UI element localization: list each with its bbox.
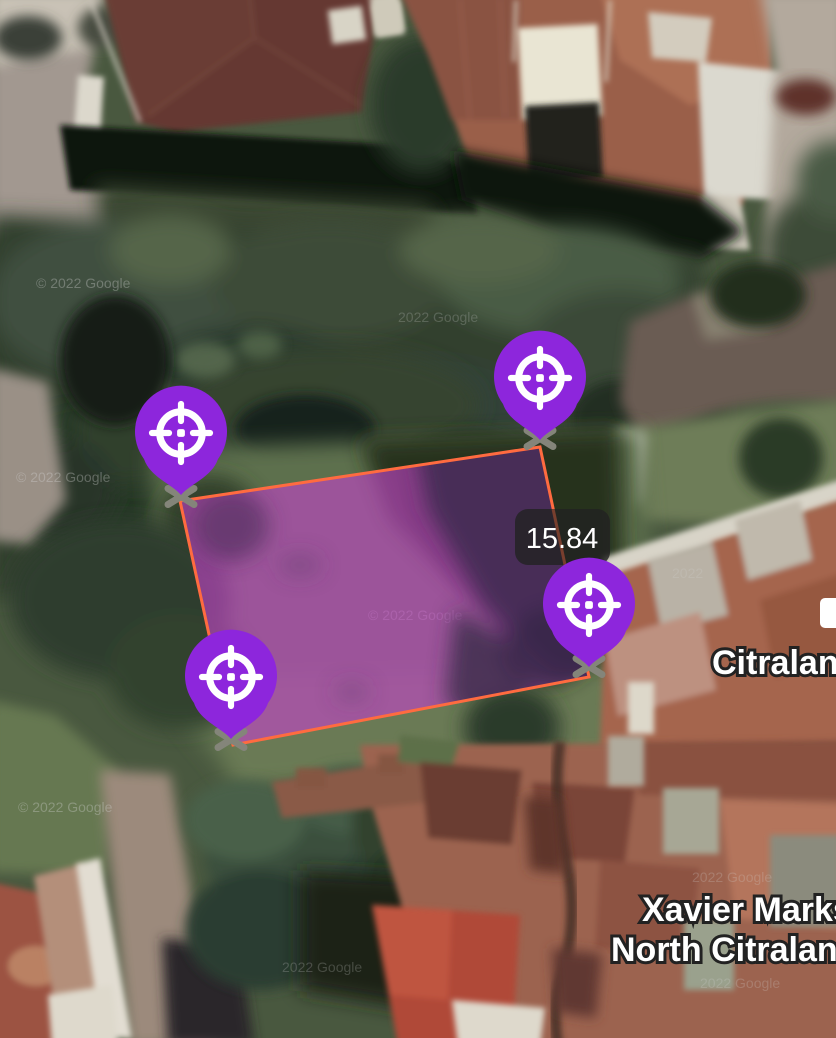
svg-text:© 2022 Google: © 2022 Google	[36, 275, 131, 291]
svg-text:© 2022 Google: © 2022 Google	[16, 469, 111, 485]
svg-text:Citraland: Citraland	[712, 644, 836, 682]
svg-text:2022 Google: 2022 Google	[700, 975, 780, 991]
svg-text:2022 Google: 2022 Google	[398, 309, 478, 325]
svg-text:2022 Google: 2022 Google	[282, 959, 362, 975]
svg-text:Xavier Marks: Xavier Marks	[642, 891, 836, 929]
svg-text:15.84: 15.84	[526, 523, 599, 555]
svg-text:North Citraland: North Citraland	[611, 931, 836, 969]
svg-text:2022 Google: 2022 Google	[692, 869, 772, 885]
svg-text:© 2022 Google: © 2022 Google	[18, 799, 113, 815]
svg-text:2022: 2022	[672, 565, 703, 581]
